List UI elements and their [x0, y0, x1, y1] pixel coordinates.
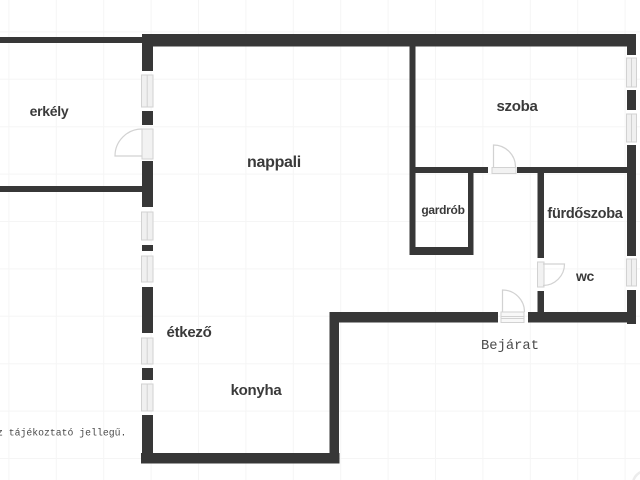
svg-text:konyha: konyha — [231, 382, 283, 399]
svg-text:nappali: nappali — [247, 154, 301, 171]
svg-text:szoba: szoba — [496, 98, 538, 115]
svg-text:étkező: étkező — [167, 324, 212, 341]
svg-text:wc: wc — [575, 268, 595, 284]
svg-text:Bejárat: Bejárat — [481, 338, 539, 354]
svg-text:erkély: erkély — [30, 103, 69, 119]
svg-text:z tájékoztató jellegű.: z tájékoztató jellegű. — [0, 428, 126, 439]
svg-text:gardrób: gardrób — [421, 203, 464, 217]
svg-text:fürdőszoba: fürdőszoba — [547, 206, 623, 222]
